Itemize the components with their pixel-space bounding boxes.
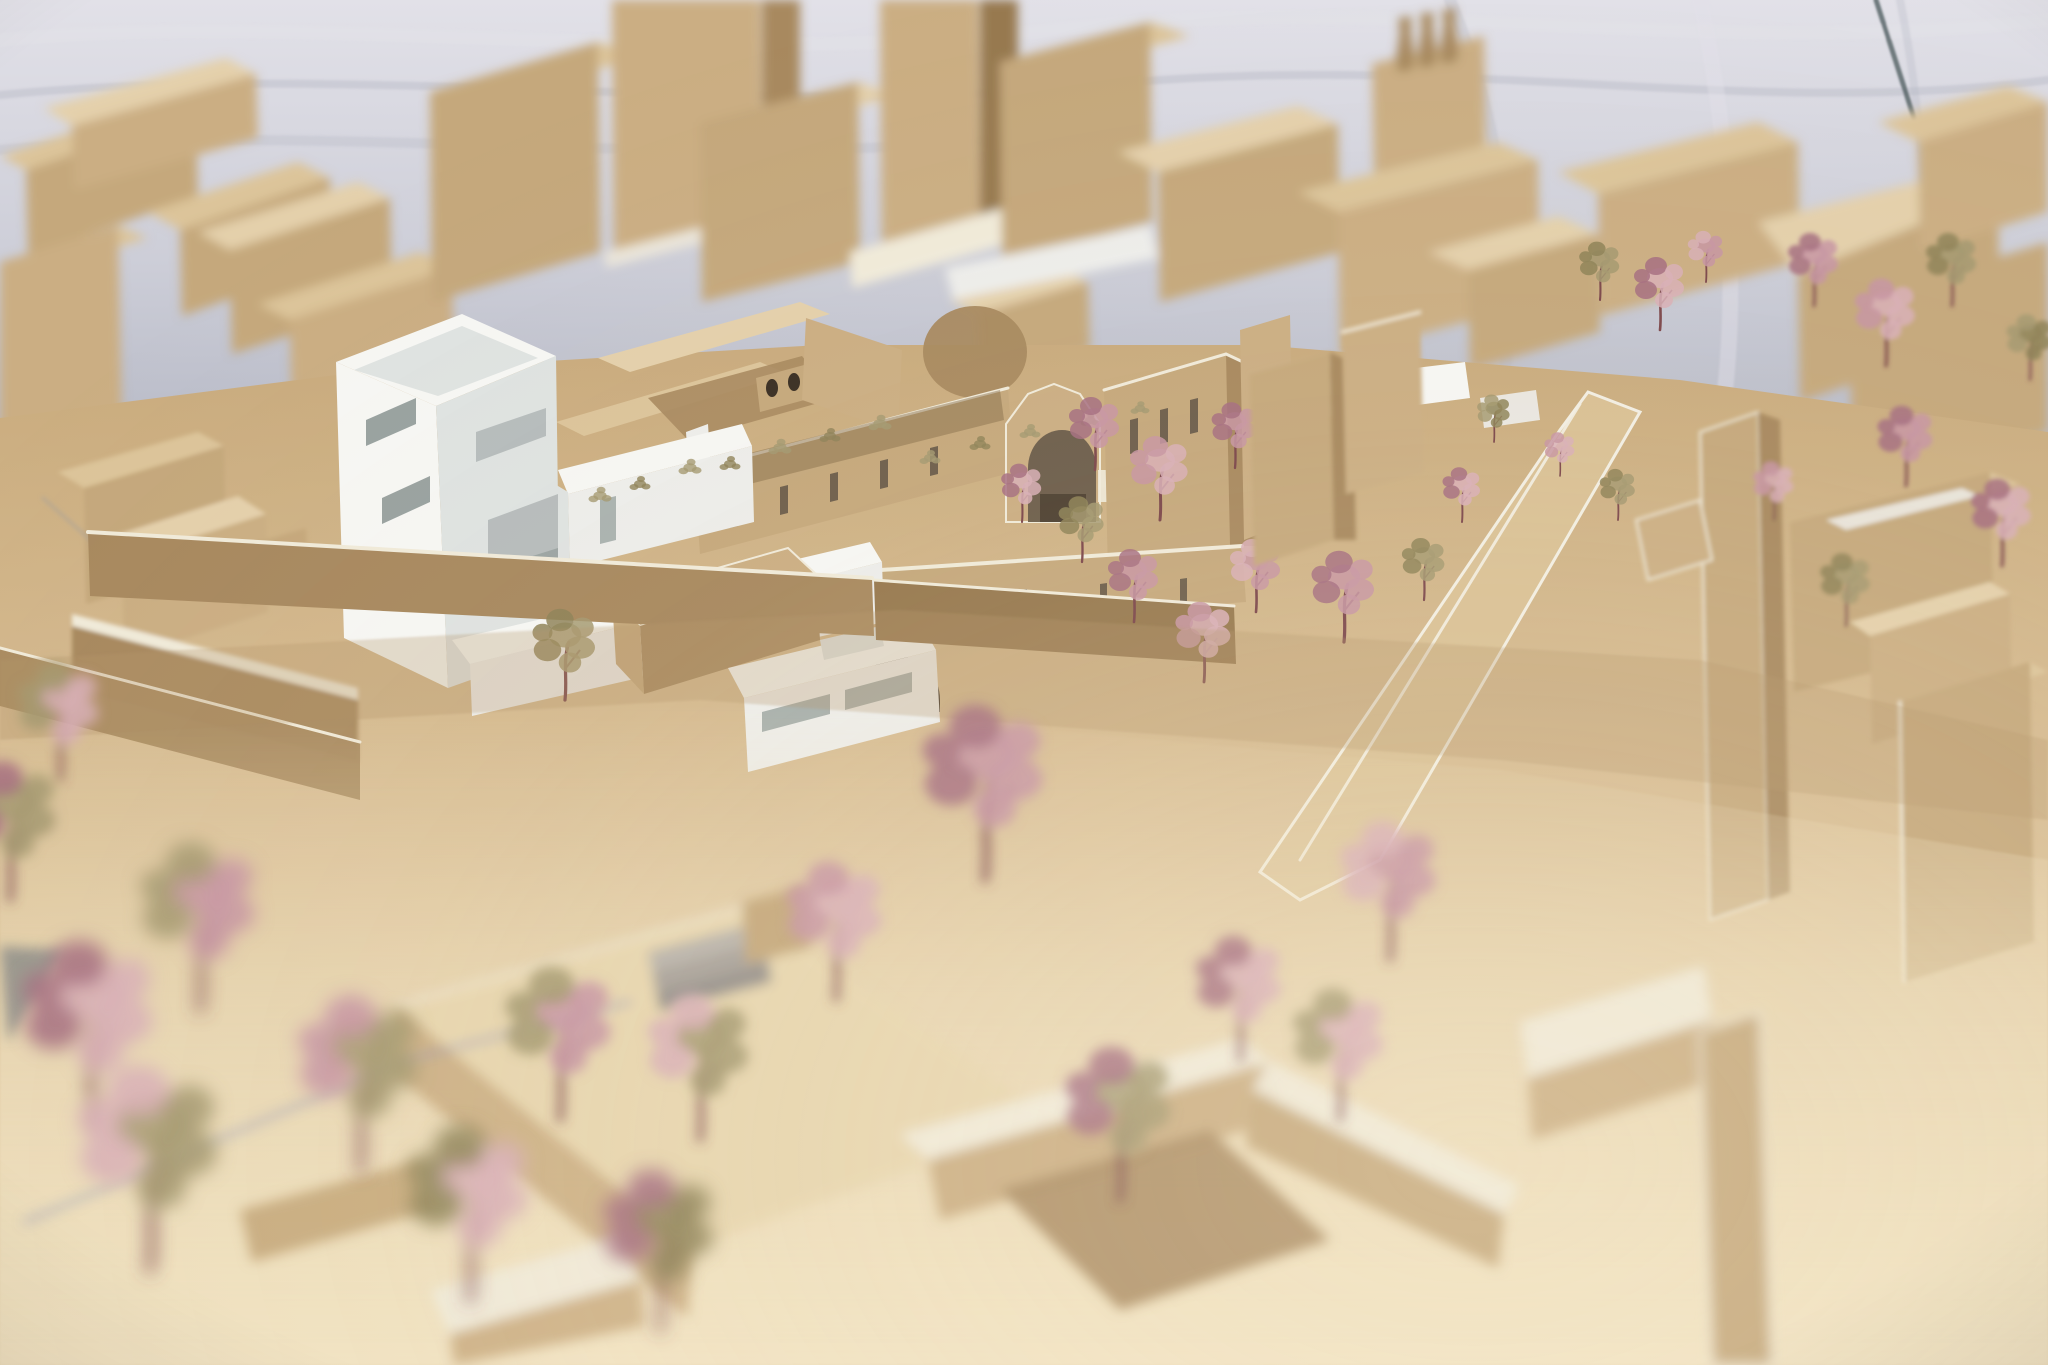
architectural-model-photo — [0, 0, 2048, 1365]
photo-frame — [0, 0, 2048, 1365]
photo-effects — [0, 0, 2048, 1365]
vignette — [0, 0, 2048, 1365]
model-layers — [0, 0, 2048, 1365]
